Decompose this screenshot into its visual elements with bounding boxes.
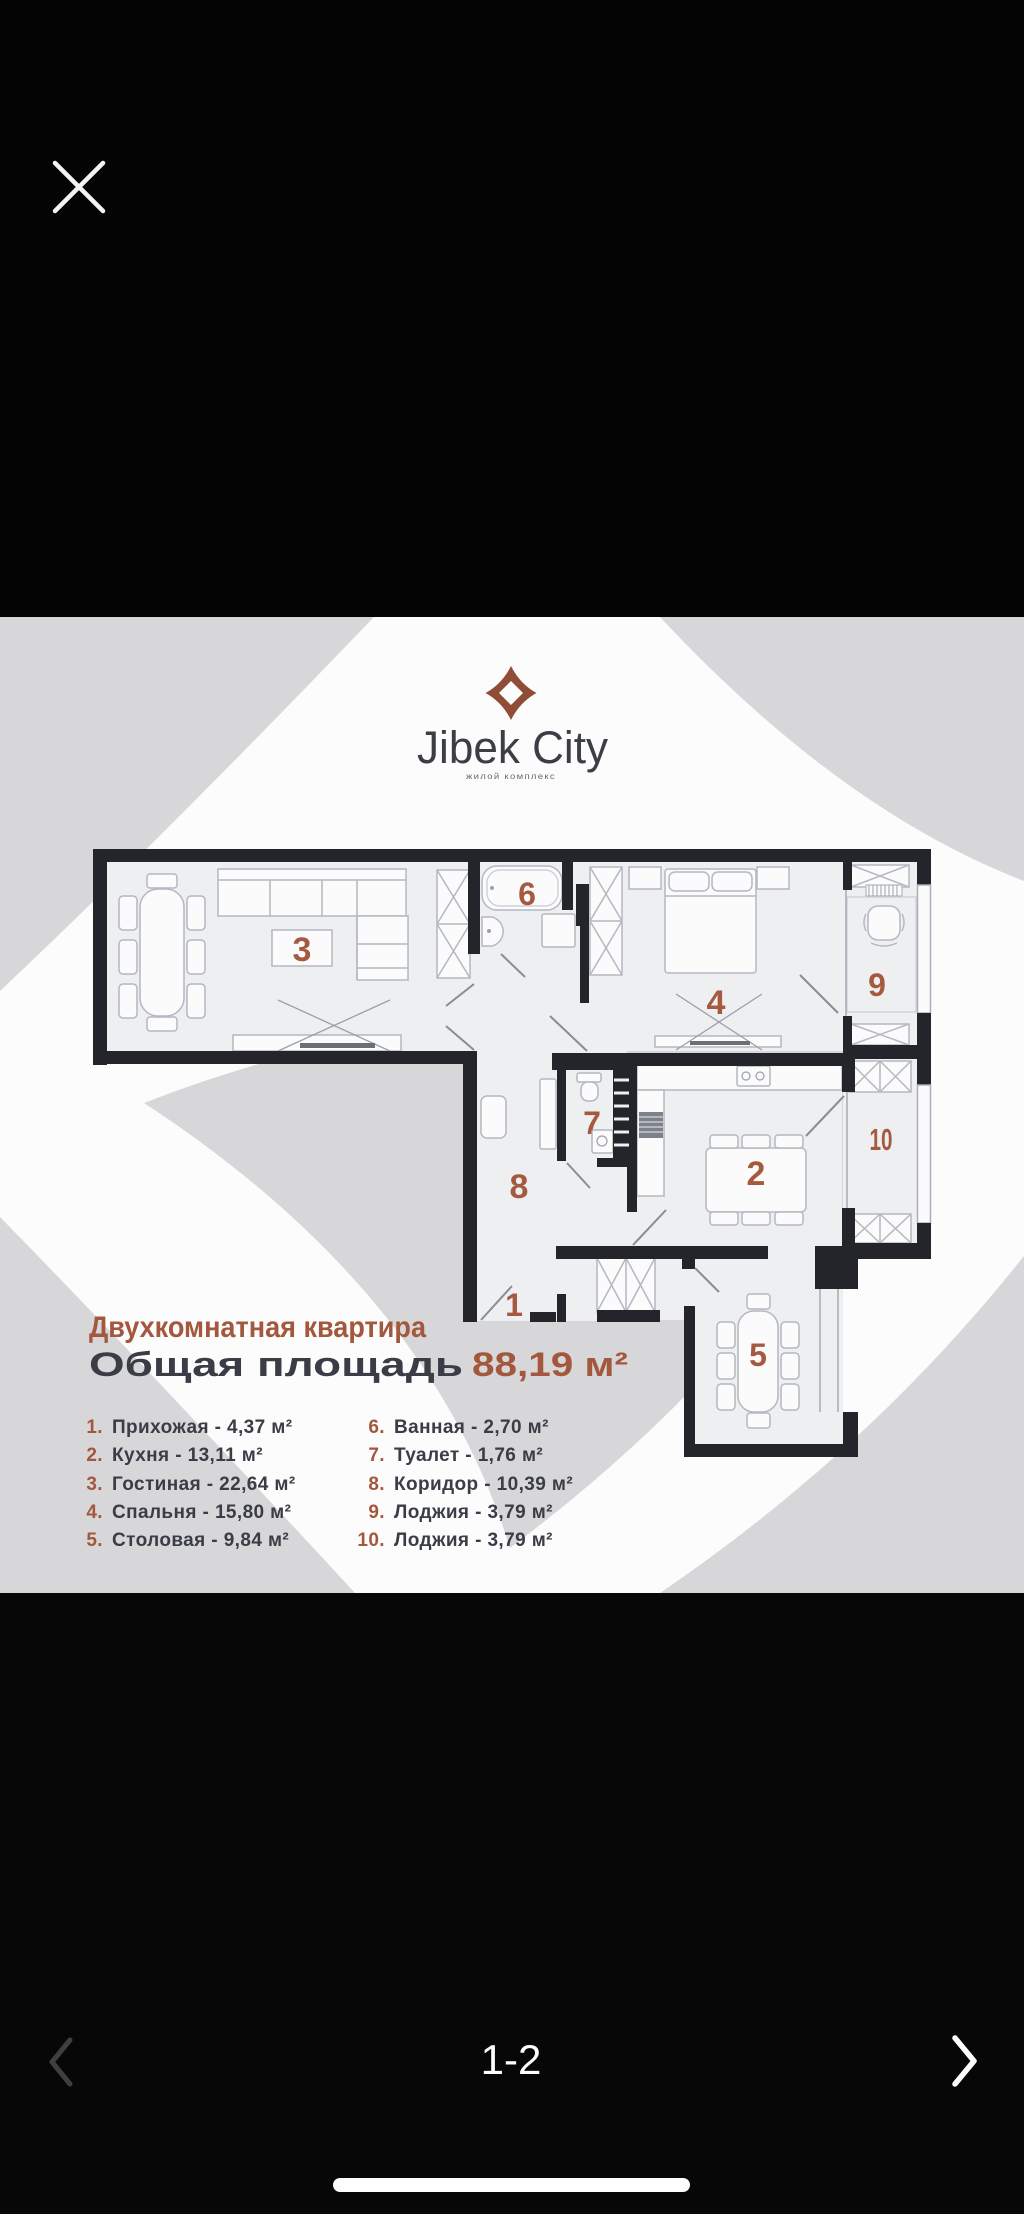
- svg-text:Общая площадь: Общая площадь: [89, 1346, 463, 1384]
- svg-text:9.: 9.: [368, 1502, 385, 1523]
- svg-text:Jibek City: Jibek City: [417, 722, 608, 773]
- svg-text:5.: 5.: [86, 1530, 103, 1551]
- svg-text:Двухкомнатная квартира: Двухкомнатная квартира: [89, 1311, 426, 1344]
- svg-text:10: 10: [870, 1122, 893, 1157]
- svg-text:жилой комплекс: жилой комплекс: [466, 772, 556, 781]
- svg-text:8.: 8.: [368, 1474, 385, 1495]
- svg-text:2: 2: [747, 1155, 766, 1193]
- svg-text:7.: 7.: [368, 1445, 385, 1466]
- svg-text:5: 5: [749, 1337, 767, 1373]
- svg-text:8: 8: [510, 1168, 529, 1206]
- svg-text:3: 3: [293, 931, 312, 969]
- svg-text:Столовая - 9,84 м²: Столовая - 9,84 м²: [112, 1530, 289, 1551]
- svg-text:Спальня - 15,80 м²: Спальня - 15,80 м²: [112, 1502, 291, 1523]
- svg-text:4.: 4.: [86, 1502, 103, 1523]
- svg-text:Прихожая - 4,37 м²: Прихожая - 4,37 м²: [112, 1417, 292, 1438]
- svg-text:Кухня - 13,11 м²: Кухня - 13,11 м²: [112, 1445, 263, 1466]
- svg-text:1: 1: [505, 1287, 523, 1323]
- svg-text:Туалет - 1,76 м²: Туалет - 1,76 м²: [394, 1445, 543, 1466]
- svg-text:Коридор - 10,39 м²: Коридор - 10,39 м²: [394, 1474, 573, 1495]
- svg-text:Лоджия - 3,79 м²: Лоджия - 3,79 м²: [394, 1502, 553, 1523]
- svg-text:3.: 3.: [86, 1474, 103, 1495]
- svg-text:10.: 10.: [357, 1530, 385, 1551]
- svg-text:Лоджия - 3,79 м²: Лоджия - 3,79 м²: [394, 1530, 553, 1551]
- svg-text:Ванная - 2,70 м²: Ванная - 2,70 м²: [394, 1417, 549, 1438]
- svg-text:2.: 2.: [86, 1445, 103, 1466]
- svg-text:4: 4: [707, 984, 726, 1022]
- svg-text:1.: 1.: [86, 1417, 103, 1438]
- svg-text:6.: 6.: [368, 1417, 385, 1438]
- svg-text:6: 6: [518, 876, 536, 912]
- svg-text:9: 9: [868, 967, 886, 1003]
- svg-text:88,19 м²: 88,19 м²: [472, 1346, 628, 1384]
- svg-text:Гостиная - 22,64 м²: Гостиная - 22,64 м²: [112, 1474, 296, 1495]
